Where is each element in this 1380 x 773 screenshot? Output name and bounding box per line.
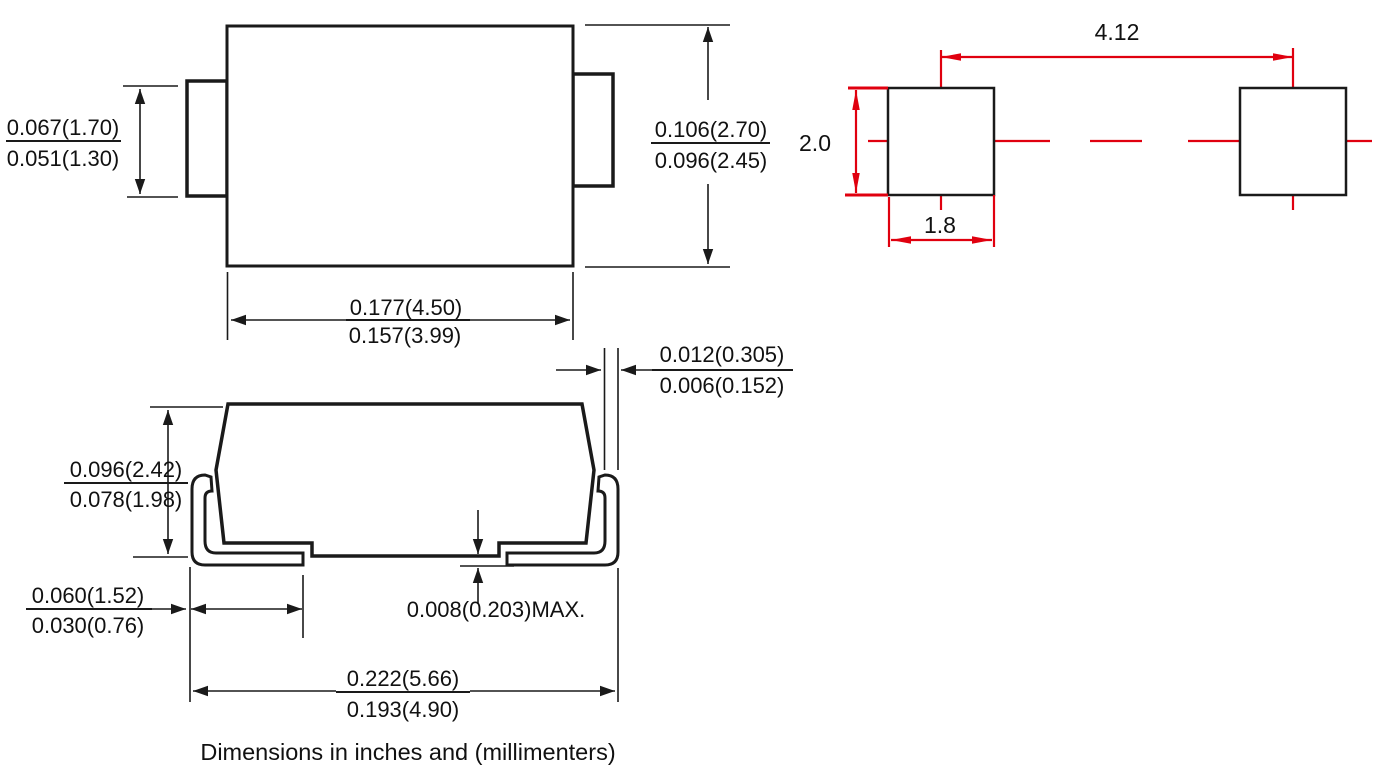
top-view-right-terminal — [573, 74, 613, 186]
dim-body-height-max: 0.106(2.70) — [655, 117, 768, 142]
dim-side-body-height-max: 0.096(2.42) — [70, 457, 183, 482]
dim-body-height-min: 0.096(2.45) — [655, 148, 768, 173]
dim-terminal-width: 0.067(1.70) 0.051(1.30) — [6, 86, 178, 197]
dim-body-width-max: 0.177(4.50) — [350, 295, 463, 320]
dim-terminal-length-max: 0.060(1.52) — [32, 583, 145, 608]
dim-pad-height-label: 2.0 — [799, 130, 831, 156]
dim-lead-thickness-max: 0.012(0.305) — [660, 342, 785, 367]
dim-body-width-min: 0.157(3.99) — [349, 323, 462, 348]
left-pad — [888, 88, 994, 195]
dim-pad-pitch-label: 4.12 — [1095, 19, 1140, 45]
dim-terminal-length-min: 0.030(0.76) — [32, 613, 145, 638]
land-pattern: 4.12 2.0 1.8 — [799, 19, 1372, 247]
dim-overall-length-max: 0.222(5.66) — [347, 666, 460, 691]
top-view: 0.067(1.70) 0.051(1.30) 0.106(2.70) 0.09… — [6, 25, 770, 348]
package-dimension-drawing-sheet: 0.067(1.70) 0.051(1.30) 0.106(2.70) 0.09… — [0, 0, 1380, 773]
dim-body-width: 0.177(4.50) 0.157(3.99) — [228, 272, 574, 348]
side-view: 0.096(2.42) 0.078(1.98) 0.012(0.305) 0.0… — [26, 342, 793, 765]
dim-side-body-height-min: 0.078(1.98) — [70, 487, 183, 512]
dim-pad-width-label: 1.8 — [924, 212, 956, 238]
side-view-right-lead — [507, 475, 618, 565]
dim-terminal-width-min: 0.051(1.30) — [7, 146, 120, 171]
dim-pad-pitch: 4.12 — [941, 19, 1293, 57]
right-pad — [1240, 88, 1346, 195]
top-view-left-terminal — [187, 81, 227, 196]
package-dimension-drawing: 0.067(1.70) 0.051(1.30) 0.106(2.70) 0.09… — [0, 0, 1380, 773]
dim-terminal-width-max: 0.067(1.70) — [7, 115, 120, 140]
dim-overall-length: 0.222(5.66) 0.193(4.90) — [190, 567, 618, 722]
dim-overall-length-min: 0.193(4.90) — [347, 697, 460, 722]
dim-terminal-length: 0.060(1.52) 0.030(0.76) — [26, 575, 303, 638]
dim-lead-thickness-min: 0.006(0.152) — [660, 373, 785, 398]
side-view-body — [216, 404, 594, 556]
dim-standoff-label: 0.008(0.203)MAX. — [407, 597, 586, 622]
units-caption: Dimensions in inches and (millimenters) — [200, 739, 615, 765]
side-view-left-lead — [192, 475, 303, 565]
top-view-body — [227, 26, 573, 266]
